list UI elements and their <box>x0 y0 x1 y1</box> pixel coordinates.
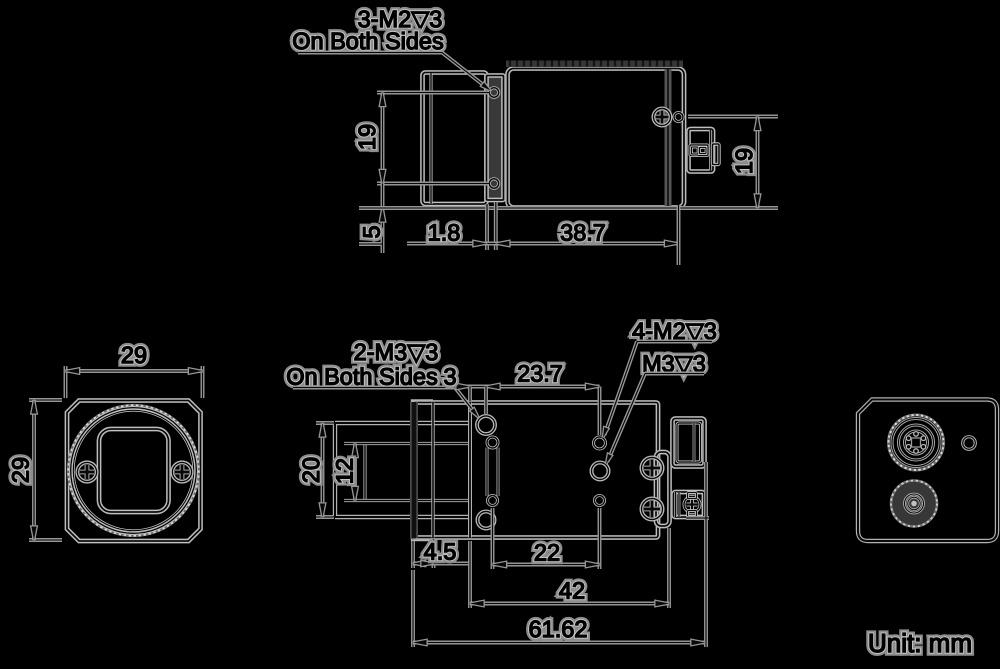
svg-text:29: 29 <box>8 457 34 483</box>
svg-text:29: 29 <box>121 342 147 368</box>
svg-text:5: 5 <box>359 225 385 238</box>
svg-text:2-M3▽3: 2-M3▽3 <box>354 339 439 365</box>
svg-text:61.62: 61.62 <box>529 616 588 642</box>
svg-text:3: 3 <box>443 364 456 390</box>
svg-text:38.7: 38.7 <box>560 220 606 246</box>
svg-text:20: 20 <box>298 457 324 483</box>
svg-text:23.7: 23.7 <box>517 361 563 387</box>
svg-text:42: 42 <box>559 578 585 604</box>
svg-text:12: 12 <box>332 458 358 484</box>
svg-text:Unit: mm: Unit: mm <box>868 628 972 658</box>
svg-text:1.8: 1.8 <box>428 220 461 246</box>
svg-text:19: 19 <box>354 124 380 150</box>
svg-text:22: 22 <box>534 540 560 566</box>
svg-text:4.5: 4.5 <box>424 539 457 565</box>
svg-text:19: 19 <box>731 148 757 174</box>
svg-text:On Both Sides: On Both Sides <box>292 28 444 54</box>
